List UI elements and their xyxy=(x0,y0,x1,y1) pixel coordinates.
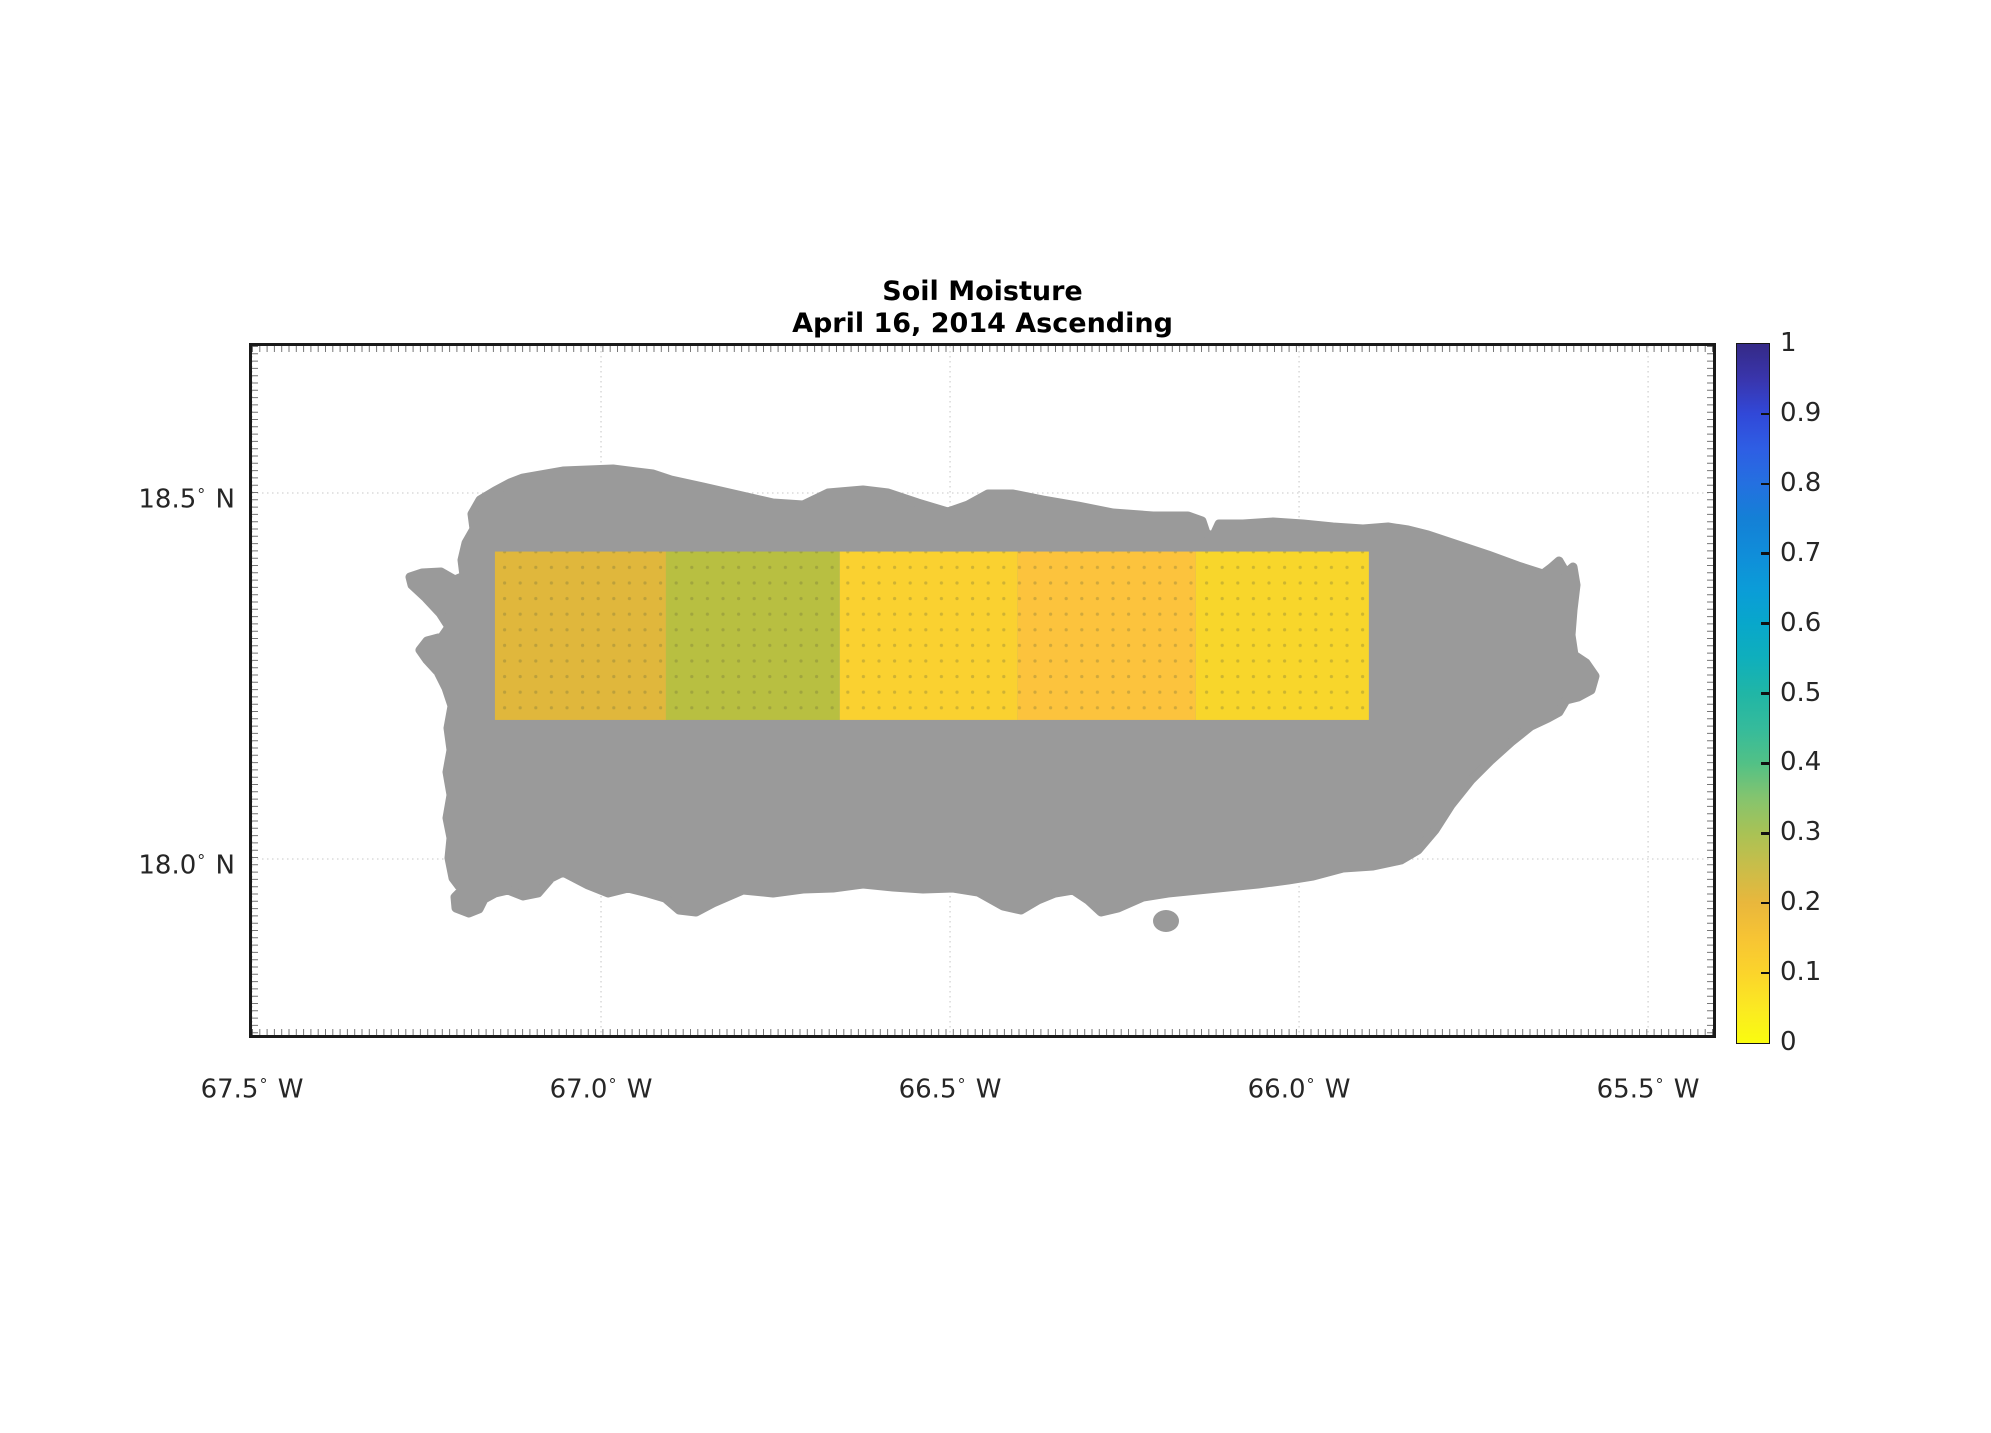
y-tick-label: 18.0° N xyxy=(0,842,235,876)
colorbar-tick-label: 0.2 xyxy=(1780,886,1821,918)
degree-symbol: ° xyxy=(1656,1075,1664,1094)
x-tick-label: 66.0° W xyxy=(1219,1066,1379,1100)
colorbar-tick-mark xyxy=(1761,692,1769,695)
colorbar-tick-label: 0.5 xyxy=(1780,677,1821,709)
colorbar-tick-mark xyxy=(1761,972,1769,975)
figure-title-line1: Soil Moisture xyxy=(249,276,1716,308)
offshore-islet xyxy=(1153,910,1179,932)
colorbar-tick-label: 0.4 xyxy=(1780,746,1821,778)
colorbar-tick-mark xyxy=(1761,762,1769,765)
colorbar-tick-label: 0.9 xyxy=(1780,397,1821,429)
colorbar xyxy=(1736,343,1770,1044)
y-tick-label: 18.5° N xyxy=(0,476,235,510)
x-tick-label: 67.0° W xyxy=(521,1066,681,1100)
colorbar-tick-label: 0.1 xyxy=(1780,956,1821,988)
x-tick-label: 66.5° W xyxy=(870,1066,1030,1100)
colorbar-tick-mark xyxy=(1761,483,1769,486)
figure-title-line2: April 16, 2014 Ascending xyxy=(249,308,1716,340)
colorbar-tick-label: 0 xyxy=(1780,1026,1797,1058)
colorbar-tick-label: 0.8 xyxy=(1780,467,1821,499)
colorbar-tick-label: 1 xyxy=(1780,327,1797,359)
degree-symbol: ° xyxy=(259,1075,267,1094)
degree-symbol: ° xyxy=(1307,1075,1315,1094)
band-dot-texture xyxy=(495,552,1369,720)
map-axes xyxy=(249,343,1716,1038)
degree-symbol: ° xyxy=(957,1075,965,1094)
colorbar-tick-label: 0.3 xyxy=(1780,816,1821,848)
colorbar-tick-mark xyxy=(1761,832,1769,835)
map-canvas xyxy=(252,346,1713,1035)
colorbar-tick-mark xyxy=(1761,622,1769,625)
colorbar-tick-mark xyxy=(1761,902,1769,905)
colorbar-tick-label: 0.7 xyxy=(1780,537,1821,569)
soil-moisture-band xyxy=(495,552,1369,720)
degree-symbol: ° xyxy=(197,485,205,504)
x-tick-label: 67.5° W xyxy=(172,1066,332,1100)
degree-symbol: ° xyxy=(608,1075,616,1094)
colorbar-tick-label: 0.6 xyxy=(1780,607,1821,639)
x-tick-label: 65.5° W xyxy=(1568,1066,1728,1100)
colorbar-tick-mark xyxy=(1761,552,1769,555)
degree-symbol: ° xyxy=(197,851,205,870)
colorbar-tick-mark xyxy=(1761,413,1769,416)
figure-title: Soil Moisture April 16, 2014 Ascending xyxy=(249,276,1716,340)
